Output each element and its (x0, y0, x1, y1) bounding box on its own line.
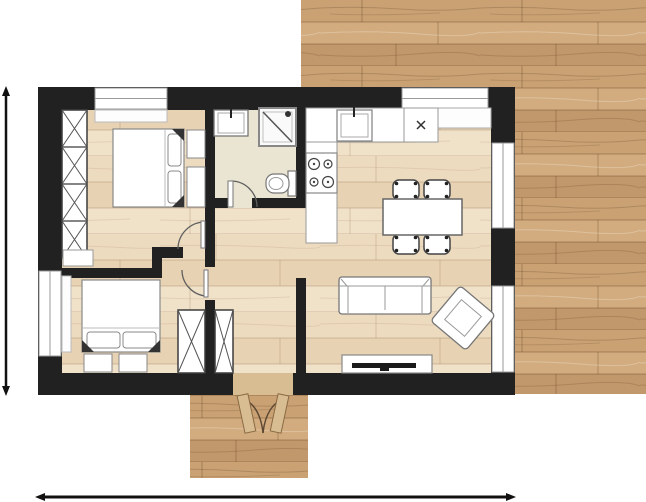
hall-wardrobe-right (215, 310, 233, 373)
window-sill-bedroom2 (62, 276, 71, 352)
dimension-line-vertical-left (2, 86, 10, 396)
shower-head (285, 111, 291, 117)
wall-bottom-right (293, 373, 515, 395)
dining-chair (424, 234, 450, 254)
stove-4-burners (306, 153, 337, 193)
floor-plan-drawing (0, 0, 646, 502)
wall-bottom-left (38, 373, 233, 395)
window-kitchen-top (402, 88, 488, 109)
floor-plan-canvas (0, 0, 646, 502)
toilet (266, 171, 296, 196)
wall-vestibule-lower (205, 300, 215, 373)
pillow (123, 332, 156, 348)
nightstand (187, 130, 205, 158)
pillow (87, 332, 120, 348)
window-sill-kitchen (438, 108, 491, 128)
double-bed-1 (113, 129, 184, 207)
wall-bathroom-bottom-b (252, 198, 296, 208)
pillow (168, 134, 181, 166)
wall-vestibule-upper (205, 247, 215, 267)
wall-hall-living (296, 278, 306, 373)
window-bedroom1-top (95, 88, 167, 109)
hall-wardrobe-left (178, 310, 205, 373)
nightstand (84, 354, 112, 372)
window-dining-right (492, 143, 514, 228)
shower (259, 108, 296, 146)
wall-bathroom-right (296, 110, 306, 208)
dresser-bed-1 (63, 250, 93, 266)
wall-bathroom-bottom-a (215, 198, 228, 208)
kitchen-appliance (404, 108, 438, 142)
hall-wardrobes (178, 310, 233, 373)
dining-chair (393, 180, 419, 200)
dimension-line-horizontal-bottom (35, 493, 516, 501)
nightstand (119, 354, 147, 372)
sofa (339, 277, 431, 314)
pillow (168, 171, 181, 203)
dining-chair (424, 180, 450, 200)
entrance-threshold (233, 373, 293, 395)
window-living-right (492, 286, 514, 372)
window-bedroom2-left (39, 271, 61, 356)
dining-chair (393, 234, 419, 254)
nightstand (187, 167, 205, 207)
tv-bench (342, 355, 432, 373)
tv-stand-foot (380, 368, 389, 371)
dining-table (383, 199, 462, 235)
tv-screen (352, 363, 416, 368)
wardrobe-4-cell (62, 110, 87, 258)
double-bed-2 (82, 280, 160, 352)
window-sill-bedroom1 (95, 110, 167, 122)
